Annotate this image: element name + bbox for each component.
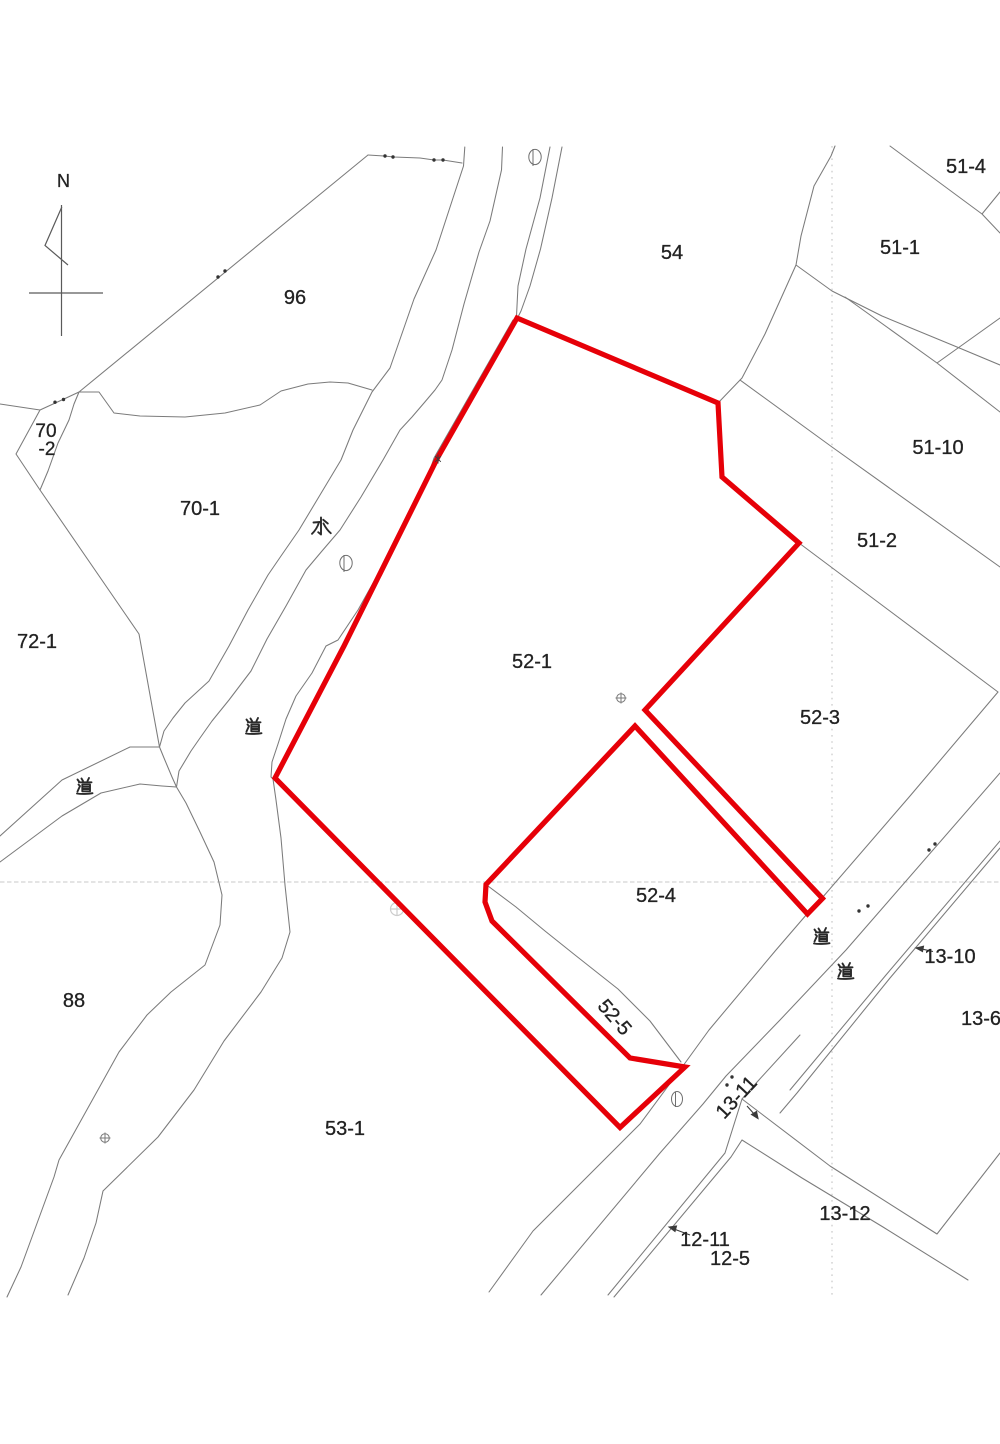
svg-text:52-3: 52-3 (800, 707, 840, 729)
svg-text:13-6: 13-6 (961, 1008, 1000, 1030)
svg-text:70-1: 70-1 (180, 498, 220, 520)
svg-text:-2: -2 (39, 439, 56, 460)
svg-text:13-10: 13-10 (924, 946, 975, 968)
svg-text:12-5: 12-5 (710, 1248, 750, 1270)
svg-text:52-1: 52-1 (512, 651, 552, 673)
svg-text:96: 96 (284, 287, 306, 309)
svg-text:72-1: 72-1 (17, 631, 57, 653)
svg-text:13-12: 13-12 (819, 1203, 870, 1225)
svg-text:51-2: 51-2 (857, 530, 897, 552)
svg-text:51-1: 51-1 (880, 237, 920, 259)
svg-text:N: N (57, 171, 70, 191)
svg-text:88: 88 (63, 990, 85, 1012)
svg-text:54: 54 (661, 242, 683, 264)
svg-text:51-10: 51-10 (912, 437, 963, 459)
svg-text:52-4: 52-4 (636, 885, 676, 907)
svg-text:51-4: 51-4 (946, 156, 986, 178)
svg-text:53-1: 53-1 (325, 1118, 365, 1140)
